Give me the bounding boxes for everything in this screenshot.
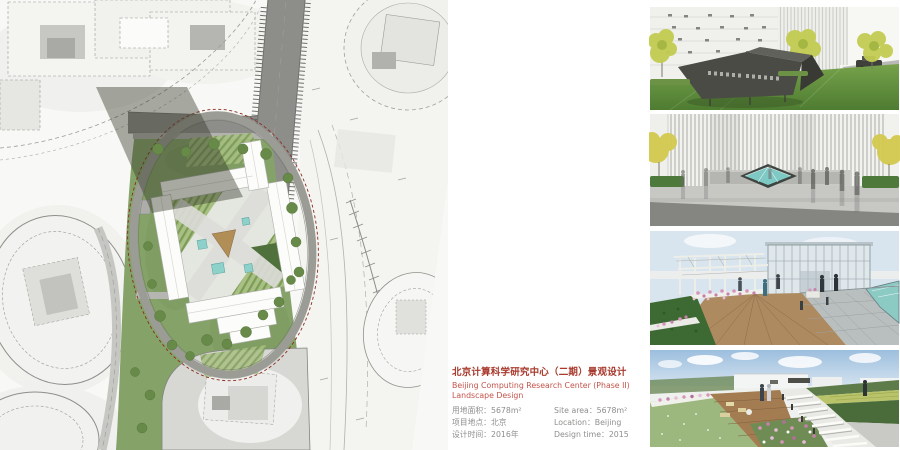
project-title-en: Beijing Computing Research Center (Phase… (452, 381, 652, 400)
detail-location-zh: 项目地点：北京 (452, 417, 554, 429)
project-title-zh: 北京计算科学研究中心（二期）景观设计 (452, 367, 652, 379)
render-roof-pergola (649, 231, 900, 345)
detail-location-en: Location：Beijing (554, 417, 652, 429)
render-skylight-plaza (649, 114, 900, 226)
detail-site-area-zh: 用地面积：5678m² (452, 405, 554, 417)
detail-design-time-zh: 设计时间：2016年 (452, 429, 554, 441)
detail-site-area-en: Site area：5678m² (554, 405, 652, 417)
render-column (649, 0, 900, 450)
render-entrance-sign (649, 7, 900, 110)
presentation-board: 北京计算科学研究中心（二期）景观设计 Beijing Computing Res… (0, 0, 900, 450)
site-plan-drawing (0, 0, 448, 450)
project-info: 北京计算科学研究中心（二期）景观设计 Beijing Computing Res… (452, 367, 652, 440)
project-details: 用地面积：5678m² Site area：5678m² 项目地点：北京 Loc… (452, 405, 652, 440)
detail-design-time-en: Design time：2015 (554, 429, 652, 441)
render-roof-garden (649, 350, 900, 447)
site-plan (0, 0, 448, 450)
